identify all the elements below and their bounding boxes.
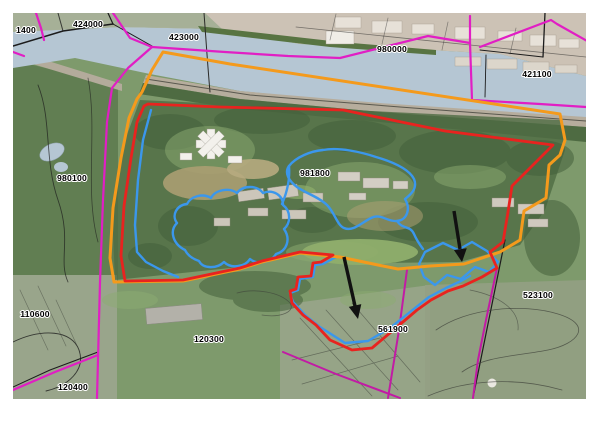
- label-424000: 424000: [73, 19, 103, 29]
- ballfield: [488, 379, 497, 388]
- urban-southeast: [425, 280, 586, 399]
- label-423000: 423000: [169, 32, 199, 42]
- map-canvas: 1400 424000 423000 980000 421100 980100 …: [0, 0, 600, 424]
- map-figure-page: 1400 424000 423000 980000 421100 980100 …: [0, 0, 600, 424]
- label-981800: 981800: [300, 168, 330, 178]
- pond-small: [54, 162, 68, 172]
- label-421100: 421100: [522, 69, 551, 79]
- label-523100: 523100: [523, 290, 553, 300]
- urban-southwest: [13, 275, 117, 399]
- label-1400: 1400: [16, 25, 36, 35]
- label-120400: 120400: [58, 382, 88, 392]
- label-980100: 980100: [57, 173, 87, 183]
- label-110600: 110600: [20, 309, 49, 319]
- label-561900: 561900: [378, 324, 408, 334]
- label-120300: 120300: [194, 334, 224, 344]
- label-980000: 980000: [377, 44, 407, 54]
